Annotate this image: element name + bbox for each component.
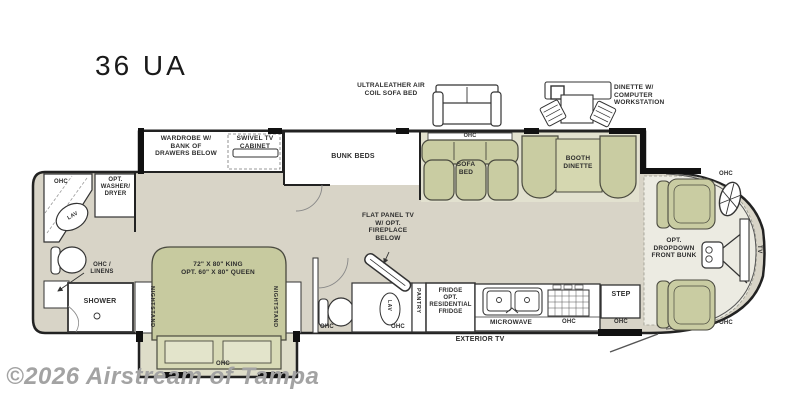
booth-dinette-label: BOOTH DINETTE — [550, 155, 606, 170]
callout-sofa-label: ULTRALEATHER AIR COIL SOFA BED — [352, 82, 430, 97]
shower-icon — [68, 283, 133, 332]
exterior-tv-label: EXTERIOR TV — [446, 336, 514, 344]
floorplan-page: 36 UA ©2026 Airstream of Tampa ULTRALEAT… — [0, 0, 800, 401]
ohc-toilet-label: OHC — [314, 324, 340, 331]
swivel-tv-label: SWIVEL TV CABINET — [228, 135, 282, 150]
ohc-sofa-label: OHC — [446, 133, 494, 139]
ohc-cab-top-label: OHC — [710, 171, 742, 178]
king-bed-label: 72" X 80" KING OPT. 60" X 80" QUEEN — [158, 261, 278, 276]
sink-icon — [483, 288, 542, 315]
ohc-step-label: OHC — [602, 319, 640, 326]
step-label: STEP — [602, 291, 640, 299]
callout-dinette-label: DINETTE W/ COMPUTER WORKSTATION — [614, 84, 680, 107]
dinette-icon — [539, 82, 616, 127]
washer-dryer-label: OPT. WASHER/ DRYER — [96, 177, 135, 198]
entry-door-line — [610, 334, 658, 352]
nightstand-left-label: NIGHTSTAND — [149, 286, 155, 328]
bunk-beds-label: BUNK BEDS — [318, 153, 388, 161]
ohc-linens-label: OHC / LINENS — [82, 262, 122, 276]
fridge-label: FRIDGE OPT. RESIDENTIAL FRIDGE — [426, 288, 475, 316]
mid-toilet-icon — [319, 298, 354, 326]
dealer-watermark: ©2026 Airstream of Tampa — [6, 363, 319, 391]
shower-label: SHOWER — [72, 298, 128, 306]
sofa-bed-label: SOFA BED — [451, 161, 481, 176]
front-tv-icon — [740, 219, 749, 281]
entry-threshold — [598, 329, 642, 336]
cooktop-icon — [548, 285, 589, 316]
front-bunk-label: OPT. DROPDOWN FRONT BUNK — [645, 237, 703, 260]
mid-lav-label: LAV — [386, 300, 392, 311]
driver-seat-icon — [657, 179, 715, 229]
wardrobe-label: WARDROBE W/ BANK OF DRAWERS BELOW — [146, 135, 226, 158]
pantry-label: PANTRY — [415, 288, 421, 314]
front-tv-label: TV — [756, 245, 762, 254]
ohc-kitchen-label: OHC — [554, 319, 584, 326]
floorplan-model-title: 36 UA — [95, 50, 188, 82]
linen-cabinet — [44, 281, 69, 308]
ohc-lav-label: OHC — [386, 324, 410, 331]
rear-toilet-icon — [51, 247, 86, 274]
flat-panel-tv-label: FLAT PANEL TV W/ OPT. FIREPLACE BELOW — [350, 212, 426, 243]
ohc-cab-bottom-label: OHC — [706, 320, 746, 327]
nightstand-right-label: NIGHTSTAND — [272, 286, 278, 328]
sofa-icon — [433, 85, 501, 126]
microwave-label: MICROWAVE — [478, 319, 544, 327]
ohc-bath-label: OHC — [46, 179, 76, 186]
step-box — [601, 285, 640, 318]
